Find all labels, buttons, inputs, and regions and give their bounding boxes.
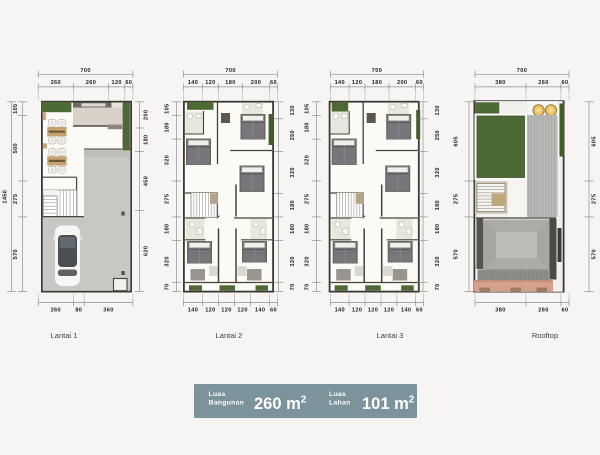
svg-text:320: 320 bbox=[290, 167, 296, 177]
svg-text:70: 70 bbox=[435, 283, 441, 290]
svg-text:260: 260 bbox=[538, 80, 548, 86]
svg-text:Lantai 1: Lantai 1 bbox=[51, 331, 78, 340]
svg-text:700: 700 bbox=[517, 68, 527, 74]
svg-text:Luas: Luas bbox=[209, 391, 226, 398]
svg-text:180: 180 bbox=[143, 135, 149, 145]
svg-text:200: 200 bbox=[251, 80, 261, 86]
svg-text:620: 620 bbox=[143, 246, 149, 256]
svg-text:120: 120 bbox=[205, 80, 215, 86]
svg-text:140: 140 bbox=[335, 308, 345, 314]
svg-text:260 m2: 260 m2 bbox=[254, 395, 307, 414]
svg-text:570: 570 bbox=[13, 249, 19, 259]
svg-text:180: 180 bbox=[435, 200, 441, 210]
svg-text:120: 120 bbox=[112, 80, 122, 86]
svg-text:120: 120 bbox=[384, 308, 394, 314]
svg-text:570: 570 bbox=[591, 249, 597, 259]
svg-text:320: 320 bbox=[164, 155, 170, 165]
svg-text:105: 105 bbox=[13, 104, 19, 114]
svg-text:260: 260 bbox=[86, 80, 96, 86]
svg-text:120: 120 bbox=[352, 80, 362, 86]
svg-text:360: 360 bbox=[103, 308, 113, 314]
svg-text:320: 320 bbox=[435, 256, 441, 266]
svg-text:60: 60 bbox=[416, 308, 423, 314]
svg-text:260: 260 bbox=[51, 308, 61, 314]
svg-text:260: 260 bbox=[51, 80, 61, 86]
svg-text:275: 275 bbox=[164, 194, 170, 204]
svg-text:180: 180 bbox=[290, 224, 296, 234]
svg-text:120: 120 bbox=[221, 308, 231, 314]
svg-text:260: 260 bbox=[538, 308, 548, 314]
svg-text:450: 450 bbox=[143, 176, 149, 186]
svg-text:605: 605 bbox=[453, 136, 459, 146]
svg-text:180: 180 bbox=[304, 224, 310, 234]
svg-text:380: 380 bbox=[495, 80, 505, 86]
svg-text:700: 700 bbox=[372, 68, 382, 74]
svg-text:320: 320 bbox=[164, 256, 170, 266]
svg-text:Rooftop: Rooftop bbox=[532, 331, 558, 340]
svg-text:200: 200 bbox=[397, 80, 407, 86]
svg-text:120: 120 bbox=[352, 308, 362, 314]
svg-text:320: 320 bbox=[304, 155, 310, 165]
svg-text:60: 60 bbox=[562, 80, 569, 86]
svg-text:500: 500 bbox=[13, 143, 19, 153]
svg-text:250: 250 bbox=[435, 130, 441, 140]
svg-text:120: 120 bbox=[368, 308, 378, 314]
svg-text:180: 180 bbox=[304, 122, 310, 132]
svg-text:320: 320 bbox=[304, 256, 310, 266]
svg-text:70: 70 bbox=[164, 283, 170, 290]
svg-text:140: 140 bbox=[401, 308, 411, 314]
svg-text:180: 180 bbox=[435, 224, 441, 234]
svg-text:60: 60 bbox=[416, 80, 423, 86]
svg-text:700: 700 bbox=[80, 68, 90, 74]
svg-text:180: 180 bbox=[372, 80, 382, 86]
svg-text:180: 180 bbox=[290, 200, 296, 210]
svg-text:1450: 1450 bbox=[2, 190, 8, 204]
svg-text:380: 380 bbox=[495, 308, 505, 314]
svg-text:105: 105 bbox=[304, 104, 310, 114]
svg-text:105: 105 bbox=[164, 104, 170, 114]
svg-text:275: 275 bbox=[304, 194, 310, 204]
svg-text:60: 60 bbox=[125, 80, 132, 86]
svg-text:Lahan: Lahan bbox=[329, 399, 351, 406]
svg-text:275: 275 bbox=[13, 194, 19, 204]
svg-text:60: 60 bbox=[270, 80, 277, 86]
svg-text:120: 120 bbox=[205, 308, 215, 314]
svg-text:180: 180 bbox=[164, 224, 170, 234]
svg-text:180: 180 bbox=[164, 122, 170, 132]
svg-text:140: 140 bbox=[188, 308, 198, 314]
svg-text:Luas: Luas bbox=[329, 391, 346, 398]
svg-text:60: 60 bbox=[562, 308, 569, 314]
svg-text:140: 140 bbox=[188, 80, 198, 86]
svg-text:140: 140 bbox=[255, 308, 265, 314]
svg-text:Bangunan: Bangunan bbox=[209, 399, 245, 406]
svg-text:60: 60 bbox=[270, 308, 277, 314]
svg-text:570: 570 bbox=[453, 249, 459, 259]
svg-text:70: 70 bbox=[304, 283, 310, 290]
svg-text:Lantai 3: Lantai 3 bbox=[377, 331, 404, 340]
svg-text:130: 130 bbox=[290, 105, 296, 115]
svg-text:140: 140 bbox=[335, 80, 345, 86]
svg-text:120: 120 bbox=[237, 308, 247, 314]
svg-text:Lantai 2: Lantai 2 bbox=[216, 331, 243, 340]
svg-text:320: 320 bbox=[435, 167, 441, 177]
svg-text:605: 605 bbox=[591, 136, 597, 146]
svg-text:320: 320 bbox=[290, 256, 296, 266]
svg-text:130: 130 bbox=[435, 105, 441, 115]
svg-text:80: 80 bbox=[75, 308, 82, 314]
svg-text:70: 70 bbox=[290, 283, 296, 290]
svg-text:250: 250 bbox=[290, 130, 296, 140]
svg-text:101 m2: 101 m2 bbox=[362, 395, 415, 414]
svg-text:180: 180 bbox=[225, 80, 235, 86]
svg-text:700: 700 bbox=[225, 68, 235, 74]
svg-text:275: 275 bbox=[591, 194, 597, 204]
svg-text:200: 200 bbox=[143, 110, 149, 120]
svg-text:275: 275 bbox=[453, 194, 459, 204]
